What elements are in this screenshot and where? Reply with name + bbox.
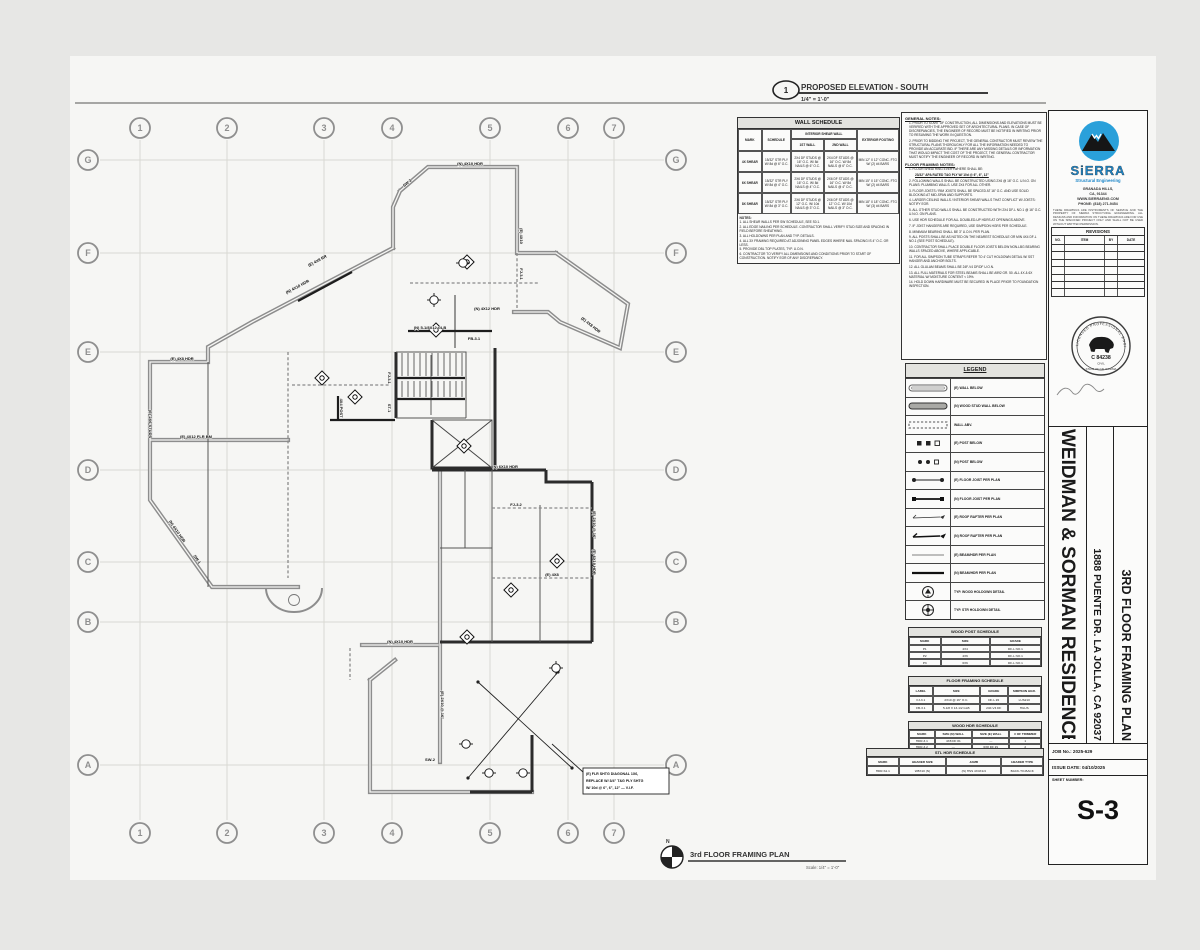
- revision-empty-row: [1052, 245, 1144, 252]
- floor-framing-title: FLOOR FRAMING SCHEDULE: [909, 677, 1041, 686]
- framing-note: 9. ALL POSTS SHALL BE AS NOTED ON THE NE…: [909, 235, 1043, 243]
- elevation-scale: 1/4" = 1'-0": [801, 97, 830, 103]
- legend-label: (N) POST BELOW: [951, 453, 1044, 471]
- svg-text:3: 3: [321, 123, 326, 133]
- col-header: SIZE: [941, 637, 990, 645]
- legend-row: (E) POST BELOW: [906, 434, 1044, 453]
- svg-text:B: B: [85, 617, 92, 627]
- company-tagline: Structural Engineering: [1049, 178, 1147, 183]
- drawing-sheet: 1 PROPOSED ELEVATION - SOUTH 1/4" = 1'-0…: [0, 0, 1200, 950]
- svg-text:7: 7: [611, 123, 616, 133]
- svg-text:(N) 6X10 HDR: (N) 6X10 HDR: [492, 464, 518, 469]
- cell-schedule: 15/32" STR PLY W/ 8d @ 3" O.C.: [762, 193, 792, 214]
- col-header-1st-wall: 1ST WALL: [791, 139, 824, 151]
- cell: 4X4: [941, 645, 990, 652]
- legend-label: TYP. STR HOLDOWN DETAIL: [951, 601, 1044, 619]
- wood-post-title: WOOD POST SCHEDULE: [909, 628, 1041, 637]
- legend-row: TYP. STR HOLDOWN DETAIL: [906, 600, 1044, 619]
- svg-text:1: 1: [137, 123, 142, 133]
- col-header: NO.: [1052, 236, 1065, 244]
- svg-text:5: 5: [487, 828, 492, 838]
- col-header: MARK: [909, 637, 941, 645]
- cell: LUS210: [1008, 696, 1041, 704]
- legend-label: WALL ABV.: [951, 416, 1044, 434]
- note-line: 4. ALL 3X FRAMING REQUIRED AT ADJOINING …: [740, 239, 898, 247]
- col-header: SIZE: [933, 686, 980, 696]
- col-header: # OF TRIMMER: [1009, 730, 1041, 738]
- col-header: BY: [1105, 236, 1118, 244]
- wall-schedule-row: 6X SHEAR 15/32" STR PLY W/ 8d @ 4" O.C. …: [738, 172, 899, 193]
- cell-mark: 4X SHEAR: [738, 151, 762, 172]
- cell: 4X6: [941, 652, 990, 659]
- legend-row: (N) POST BELOW: [906, 452, 1044, 471]
- svg-text:(N) 4X10 HDR: (N) 4X10 HDR: [457, 161, 483, 166]
- sheet-title: 3RD FLOOR FRAMING PLAN: [1117, 567, 1135, 741]
- general-note: 1. PRIOR TO START OF CONSTRUCTION, ALL D…: [909, 121, 1043, 137]
- cell: DF-L NO.1: [990, 652, 1041, 659]
- svg-text:D: D: [673, 465, 680, 475]
- col-header-2nd-wall: 2ND WALL: [824, 139, 857, 151]
- wall-schedule-row: 4X SHEAR 15/32" STR PLY W/ 8d @ 6" O.C. …: [738, 151, 899, 172]
- svg-text:C: C: [673, 557, 680, 567]
- cell: FB-3.1: [909, 704, 933, 712]
- col-header: HEADER SIZE: [899, 757, 946, 766]
- svg-text:B: B: [673, 617, 680, 627]
- issue-date: ISSUE DATE: 04/10/2025: [1049, 759, 1147, 775]
- stamp-arc-bottom: STATE OF CALIFORNIA: [1086, 367, 1117, 371]
- legend-row: (E) BEAM/HDR PER PLAN: [906, 545, 1044, 564]
- cell: DF-L NO.1: [990, 659, 1041, 666]
- svg-text:1: 1: [137, 828, 142, 838]
- note-line: 2. ALL EDGE NAILING PER SCHEDULE. CONTRA…: [740, 225, 898, 233]
- cell-mark: 6X SHEAR: [738, 172, 762, 193]
- legend-row: (E) ROOF RAFTER PER PLAN: [906, 508, 1044, 527]
- cell-schedule: 15/32" STR PLY W/ 8d @ 4" O.C.: [762, 172, 792, 193]
- company-name: SiERRA: [1049, 163, 1147, 178]
- sheet-number-label: SHEET NUMBER:: [1049, 775, 1147, 785]
- cell: HGUS: [1008, 704, 1041, 712]
- svg-text:(E) 2X10 @ 16": (E) 2X10 @ 16": [440, 691, 445, 719]
- grid-lines: [100, 140, 664, 820]
- new-beam-symbol: [906, 564, 951, 582]
- legend-row: (N) BEAM/HDR PER PLAN: [906, 563, 1044, 582]
- new-wall-symbol: [906, 398, 951, 416]
- legend-label: TYP. WOOD HOLDOWN DETAIL: [951, 583, 1044, 601]
- cell: DF-L #2: [980, 696, 1008, 704]
- note-line: 3. ALL HOLDOWNS PER PLAN AND TYP. DETAIL…: [740, 234, 898, 238]
- legend-title: LEGEND: [906, 364, 1044, 378]
- wall-above-symbol: [906, 416, 951, 434]
- legend-label: (E) BEAM/HDR PER PLAN: [951, 546, 1044, 564]
- revision-empty-row: [1052, 282, 1144, 289]
- svg-text:A: A: [673, 760, 680, 770]
- general-notes-panel: GENERAL NOTES: 1. PRIOR TO START OF CONS…: [901, 112, 1047, 360]
- plan-title: 3rd FLOOR FRAMING PLAN: [690, 850, 790, 859]
- existing-wall-symbol: [906, 379, 951, 397]
- svg-text:(N) 5-1/8X12 GLB: (N) 5-1/8X12 GLB: [414, 325, 447, 330]
- stl-hdr-title: STL HDR SCHEDULE: [867, 749, 1043, 757]
- framing-note: 6. USE HDR SCHEDULE FOR ALL DOUBLED-UP H…: [909, 218, 1043, 222]
- framing-note: 11. FOR ALL SIMPSON TUBE STRAPS REFER TO…: [909, 255, 1043, 263]
- project-address: 1888 PUENTE DR. LA JOLLA, CA 92037: [1089, 489, 1103, 741]
- cell-int2: 2X6 DF STUDS @ 16" O.C. W/ 8d NAILS @ 4"…: [824, 172, 857, 193]
- col-header: SIMPSON HGR.: [1008, 686, 1041, 696]
- svg-text:4: 4: [389, 828, 394, 838]
- legend-row: TYP. WOOD HOLDOWN DETAIL: [906, 582, 1044, 601]
- svg-text:6: 6: [565, 828, 570, 838]
- wood-post-schedule: WOOD POST SCHEDULE MARK SIZE GRADE P1 4X…: [908, 627, 1042, 667]
- svg-text:(E) FLR SHTG DIAGONAL 1X6,: (E) FLR SHTG DIAGONAL 1X6,: [586, 772, 638, 776]
- str-holdown-symbol: [906, 601, 951, 619]
- legend-label: (E) ROOF RAFTER PER PLAN: [951, 509, 1044, 527]
- cell: 2X10 @ 16" O.C.: [933, 696, 980, 704]
- svg-text:A: A: [85, 760, 92, 770]
- svg-text:(E) 4X12 FLR BM: (E) 4X12 FLR BM: [180, 434, 213, 439]
- cell-int1: 2X4 DF STUDS @ 16" O.C. W/ 8d NAILS @ 6"…: [791, 151, 824, 172]
- legend-label: (N) BEAM/HDR PER PLAN: [951, 564, 1044, 582]
- plan-scale: Scale: 1/4" = 1'-0": [806, 865, 840, 870]
- cell: 6X6: [941, 659, 990, 666]
- existing-beam-symbol: [906, 546, 951, 564]
- project-client-name: WEIDMAN & SORMAN RESIDENCE: [1053, 429, 1081, 739]
- legend-row: (N) ROOF RAFTER PER PLAN: [906, 526, 1044, 545]
- legend-row: (E) FLOOR JOIST PER PLAN: [906, 471, 1044, 490]
- cell: 5-1/8 X 13-1/2 GLB: [933, 704, 980, 712]
- legend-label: (N) FLOOR JOIST PER PLAN: [951, 490, 1044, 508]
- cell: P3: [909, 659, 941, 666]
- svg-text:G: G: [84, 155, 91, 165]
- col-header-exterior: EXTERIOR FOOTING: [857, 129, 899, 151]
- cell: P2: [909, 652, 941, 659]
- legend-row: (N) FLOOR JOIST PER PLAN: [906, 489, 1044, 508]
- cell-ext: MIN 15" X 15" CONC. FTG W/ (2) #4 BARS: [857, 172, 899, 193]
- cell-int2: 2X4 DF STUDS @ 16" O.C. W/ 8d NAILS @ 6"…: [824, 151, 857, 172]
- plan-note-box: (E) FLR SHTG DIAGONAL 1X6, REPLACE W/ 3/…: [583, 768, 669, 794]
- cell: (N) HSS 4X4X1/4: [946, 766, 1001, 775]
- existing-roof-rafter-symbol: [906, 509, 951, 527]
- wall-schedule-table: WALL SCHEDULE MARK SCHEDULE INTERIOR SHE…: [737, 117, 900, 264]
- framing-note: 1. FLOOR SHEATHING EVERYWHERE SHALL BE:: [909, 167, 1043, 171]
- legend-label: (E) WALL BELOW: [951, 379, 1044, 397]
- svg-text:(E) 4X10: (E) 4X10: [519, 228, 524, 245]
- sheet-number: S-3: [1049, 795, 1147, 845]
- framing-note: 3. FLOOR JOISTS / RIM JOISTS SHALL BE SP…: [909, 189, 1043, 197]
- col-header-interior-group: INTERIOR SHEAR WALL 1ST WALL 2ND WALL: [791, 129, 857, 151]
- col-header-schedule: SCHEDULE: [762, 129, 791, 151]
- grid-bubbles: 1234567 1234567 GFEDCBA GFEDCBA: [78, 118, 686, 843]
- legend-label: (E) POST BELOW: [951, 435, 1044, 453]
- svg-text:5: 5: [487, 123, 492, 133]
- cell-int2: 2X6 DF STUDS @ 12" O.C. W/ 10d NAILS @ 3…: [824, 193, 857, 214]
- svg-text:(N) 4X10 HDR: (N) 4X10 HDR: [387, 639, 413, 644]
- svg-text:(E) 4X8 HDR: (E) 4X8 HDR: [170, 356, 193, 361]
- revision-empty-row: [1052, 252, 1144, 259]
- company-address: GRANADA HILLS, CA, 91344 WWW.SIERRAENG.C…: [1049, 187, 1147, 207]
- wood-hdr-schedule: WOOD HDR SCHEDULE MARK SIZE (N) WALL SIZ…: [908, 721, 1042, 751]
- svg-text:FJ-3.2: FJ-3.2: [510, 502, 522, 507]
- svg-text:6: 6: [565, 123, 570, 133]
- svg-text:D: D: [85, 465, 92, 475]
- framing-spec: 23/32" APA RATED T&G PLY W/ 10d @ 6", 6"…: [915, 173, 1043, 177]
- floor-framing-schedule: FLOOR FRAMING SCHEDULE LABEL SIZE GRADE …: [908, 676, 1042, 713]
- col-header: MARK: [867, 757, 899, 766]
- cell: HDR-S1.1: [867, 766, 899, 775]
- svg-text:REPLACE W/ 3/4" T&G PLY SHTG: REPLACE W/ 3/4" T&G PLY SHTG: [586, 779, 644, 783]
- divider: [1113, 426, 1114, 743]
- legend-row: WALL ABV.: [906, 415, 1044, 434]
- svg-text:C: C: [85, 557, 92, 567]
- joist-arrow-ends: [466, 670, 573, 779]
- framing-note: 12. ALL GLULAM BEAMS SHALL BE 24F-V4 DF/…: [909, 265, 1043, 269]
- col-header: JAMB: [946, 757, 1001, 766]
- revision-empty-row: [1052, 267, 1144, 274]
- cell-schedule: 15/32" STR PLY W/ 8d @ 6" O.C.: [762, 151, 792, 172]
- cell: W8X10 (N): [899, 766, 946, 775]
- svg-text:(E) 2X10 @ 16": (E) 2X10 @ 16": [592, 511, 597, 539]
- framing-note: 4. LARGER CEILING WALLS / INTERIOR SHEAR…: [909, 198, 1043, 206]
- col-header-interior: INTERIOR SHEAR WALL: [791, 129, 857, 139]
- framing-note: 7. IF JOIST HANGERS ARE REQUIRED, USE SI…: [909, 224, 1043, 228]
- cell: DF-L NO.1: [990, 645, 1041, 652]
- cell-ext: MIN 18" X 18" CONC. FTG W/ (3) #4 BARS: [857, 193, 899, 214]
- signature: [1057, 384, 1104, 395]
- joist-lines: [455, 295, 583, 778]
- existing-floor-joist-symbol: [906, 472, 951, 490]
- revision-empty-row: [1052, 275, 1144, 282]
- legend-label: (E) FLOOR JOIST PER PLAN: [951, 472, 1044, 490]
- cell: 24F-V4 DF: [980, 704, 1008, 712]
- note-line: 1. ALL SHEAR WALLS PER SW SCHEDULE, SEE …: [740, 220, 898, 224]
- divider: [1049, 426, 1147, 427]
- framing-note: 2. FOLLOWING WALLS SHALL BE CONSTRUCTED …: [909, 179, 1043, 187]
- framing-note: 8. MINIMUM BEARING SHALL BE 3" U.O.N. PE…: [909, 230, 1043, 234]
- svg-text:7: 7: [611, 828, 616, 838]
- svg-text:4: 4: [389, 123, 394, 133]
- elevation-title: PROPOSED ELEVATION - SOUTH: [801, 83, 928, 92]
- col-header: DATE: [1118, 236, 1144, 244]
- svg-text:E: E: [85, 347, 91, 357]
- cell-int1: 2X6 DF STUDS @ 12" O.C. W/ 10d NAILS @ 3…: [791, 193, 824, 214]
- svg-text:(E) 6X10 HDR: (E) 6X10 HDR: [592, 549, 597, 575]
- wood-hdr-title: WOOD HDR SCHEDULE: [909, 722, 1041, 730]
- job-number: JOB No.: 2025-629: [1049, 743, 1147, 759]
- revision-empty-row: [1052, 260, 1144, 267]
- bear-icon: [1089, 337, 1114, 353]
- cell-mark: 8X SHEAR: [738, 193, 762, 214]
- elevation-bubble-number: 1: [784, 86, 789, 95]
- existing-walls: [150, 167, 628, 792]
- svg-text:FJ-3.1: FJ-3.1: [519, 268, 524, 280]
- svg-text:2: 2: [224, 123, 229, 133]
- legend-row: (E) WALL BELOW: [906, 378, 1044, 397]
- legend-label: (N) ROOF RAFTER PER PLAN: [951, 527, 1044, 545]
- svg-text:3: 3: [321, 828, 326, 838]
- col-header: GRADE: [990, 637, 1041, 645]
- framing-note: 5. ALL OTHER STUD WALLS SHALL BE CONSTRU…: [909, 208, 1043, 216]
- revisions-title: REVISIONS: [1052, 228, 1144, 236]
- new-walls: [396, 348, 592, 792]
- svg-text:(E) 4X8: (E) 4X8: [545, 572, 559, 577]
- general-note: 2. PRIOR TO BIDDING THE PROJECT, THE GEN…: [909, 139, 1043, 159]
- address-line: PHONE: (818) 271-9454: [1049, 202, 1147, 207]
- svg-text:FB-3.1: FB-3.1: [468, 336, 481, 341]
- svg-text:W/ 10d @ 6", 6", 12" — V.I.F.: W/ 10d @ 6", 6", 12" — V.I.F.: [586, 786, 634, 790]
- stamp-license: C 84238: [1091, 355, 1111, 361]
- revisions-table: REVISIONS NO. ITEM BY DATE: [1051, 227, 1145, 297]
- svg-text:ST-1: ST-1: [387, 404, 392, 413]
- col-header: SIZE (N) WALL: [935, 730, 972, 738]
- new-floor-joist-symbol: [906, 490, 951, 508]
- svg-text:SW-2: SW-2: [425, 757, 436, 762]
- revision-empty-row: [1052, 289, 1144, 295]
- col-header: HEADER TYPE: [1001, 757, 1043, 766]
- cell: FJ-3.1: [909, 696, 933, 704]
- svg-text:F: F: [673, 248, 679, 258]
- svg-text:(E) 4X8 RR: (E) 4X8 RR: [307, 254, 328, 268]
- stamp-arc-top: LICENSED PROFESSIONAL ENGINEER: [1049, 299, 1127, 348]
- existing-post-symbol: [906, 435, 951, 453]
- note-line: 5. PROVIDE DBL TOP PLATES, TYP. U.O.N.: [740, 247, 898, 251]
- svg-text:F: F: [85, 248, 91, 258]
- stamp-discipline: CIVIL: [1097, 362, 1105, 366]
- legend-row: (N) WOOD STUD WALL BELOW: [906, 397, 1044, 416]
- new-post-symbol: [906, 453, 951, 471]
- legend-panel: LEGEND (E) WALL BELOW (N) WOOD STUD WALL…: [905, 363, 1045, 620]
- company-disclaimer: THESE DRAWINGS ARE INSTRUMENTS OF SERVIC…: [1053, 209, 1143, 226]
- col-header: LABEL: [909, 686, 933, 696]
- legend-label: (N) WOOD STUD WALL BELOW: [951, 398, 1044, 416]
- wall-schedule-row: 8X SHEAR 15/32" STR PLY W/ 8d @ 3" O.C. …: [738, 193, 899, 214]
- wall-schedule-header: MARK SCHEDULE INTERIOR SHEAR WALL 1ST WA…: [738, 129, 899, 151]
- note-line: NOTES:: [740, 216, 898, 220]
- svg-text:2: 2: [224, 828, 229, 838]
- new-roof-rafter-symbol: [906, 527, 951, 545]
- wood-holdown-symbol: [906, 583, 951, 601]
- stairs: [402, 353, 462, 415]
- note-line: 6. CONTRACTOR TO VERIFY ALL DIMENSIONS A…: [740, 252, 898, 260]
- stl-hdr-schedule: STL HDR SCHEDULE MARK HEADER SIZE JAMB H…: [866, 748, 1044, 776]
- cell-int1: 2X6 DF STUDS @ 16" O.C. W/ 8d NAILS @ 4"…: [791, 172, 824, 193]
- col-header: ITEM: [1065, 236, 1105, 244]
- pe-stamp: LICENSED PROFESSIONAL ENGINEER C 84238 C…: [1049, 299, 1147, 419]
- col-header: MARK: [909, 730, 935, 738]
- wall-schedule-title: WALL SCHEDULE: [738, 118, 899, 129]
- framing-note: 13. ALL FULL MATERIALS FOR STEEL BEAMS S…: [909, 271, 1043, 279]
- col-header: GRADE: [980, 686, 1008, 696]
- svg-text:E: E: [673, 347, 679, 357]
- svg-text:G: G: [672, 155, 679, 165]
- cell-ext: MIN 12" X 12" CONC. FTG W/ (2) #4 BARS: [857, 151, 899, 172]
- svg-text:FJ-3.1: FJ-3.1: [387, 372, 392, 384]
- framing-note: 14. HOLD DOWN HARDWARE MUST BE SECURED I…: [909, 280, 1043, 288]
- wall-schedule-notes: NOTES: 1. ALL SHEAR WALLS PER SW SCHEDUL…: [738, 214, 899, 263]
- cell: BACK-TO-BACK: [1001, 766, 1043, 775]
- plan-north-letter: N: [666, 839, 670, 845]
- col-header-mark: MARK: [738, 129, 762, 151]
- cell: P1: [909, 645, 941, 652]
- title-block: SiERRA Structural Engineering GRANADA HI…: [1048, 110, 1148, 865]
- svg-text:(N) 4X12 HDR: (N) 4X12 HDR: [474, 306, 500, 311]
- framing-note: 10. CONTRACTOR SHALL PLACE DOUBLE FLOOR …: [909, 245, 1043, 253]
- divider: [1086, 426, 1087, 743]
- detail-circle-markers: [427, 259, 563, 777]
- bay-arc: [266, 588, 322, 612]
- svg-text:(E) 2X6 STUDS: (E) 2X6 STUDS: [148, 410, 153, 439]
- svg-text:LICENSED PROFESSIONAL ENGINEER: LICENSED PROFESSIONAL ENGINEER: [1049, 299, 1127, 348]
- col-header: SIZE (E) WALL: [972, 730, 1009, 738]
- svg-text:4X4 POST: 4X4 POST: [339, 398, 344, 418]
